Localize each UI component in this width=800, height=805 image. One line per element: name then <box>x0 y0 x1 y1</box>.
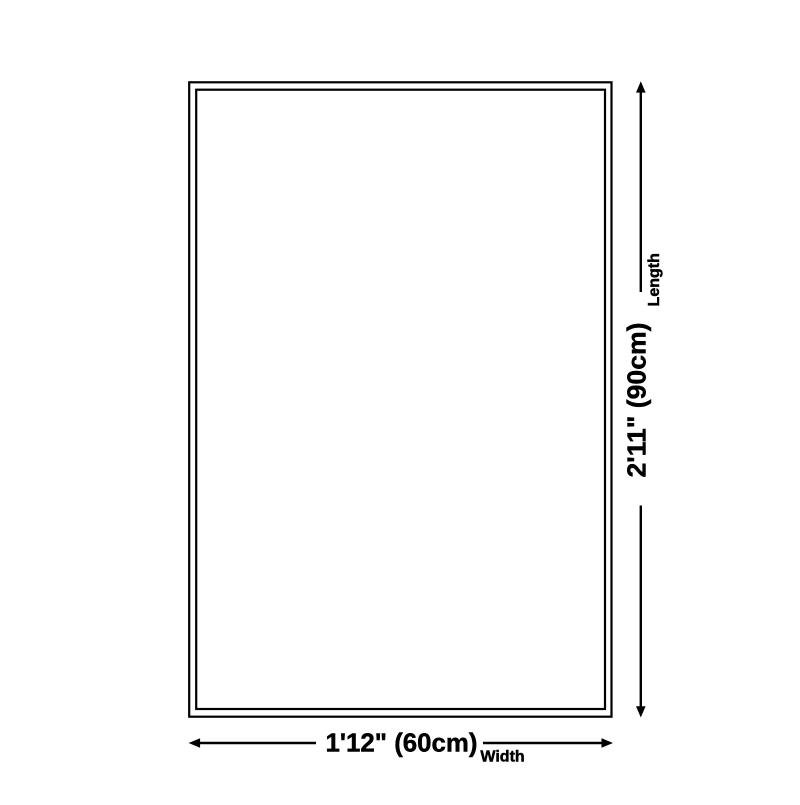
svg-text:1'12" (60cm): 1'12" (60cm) <box>326 727 478 757</box>
svg-text:2'11" (90cm): 2'11" (90cm) <box>622 323 652 478</box>
svg-text:Width: Width <box>480 749 524 766</box>
svg-text:Length: Length <box>646 253 663 306</box>
